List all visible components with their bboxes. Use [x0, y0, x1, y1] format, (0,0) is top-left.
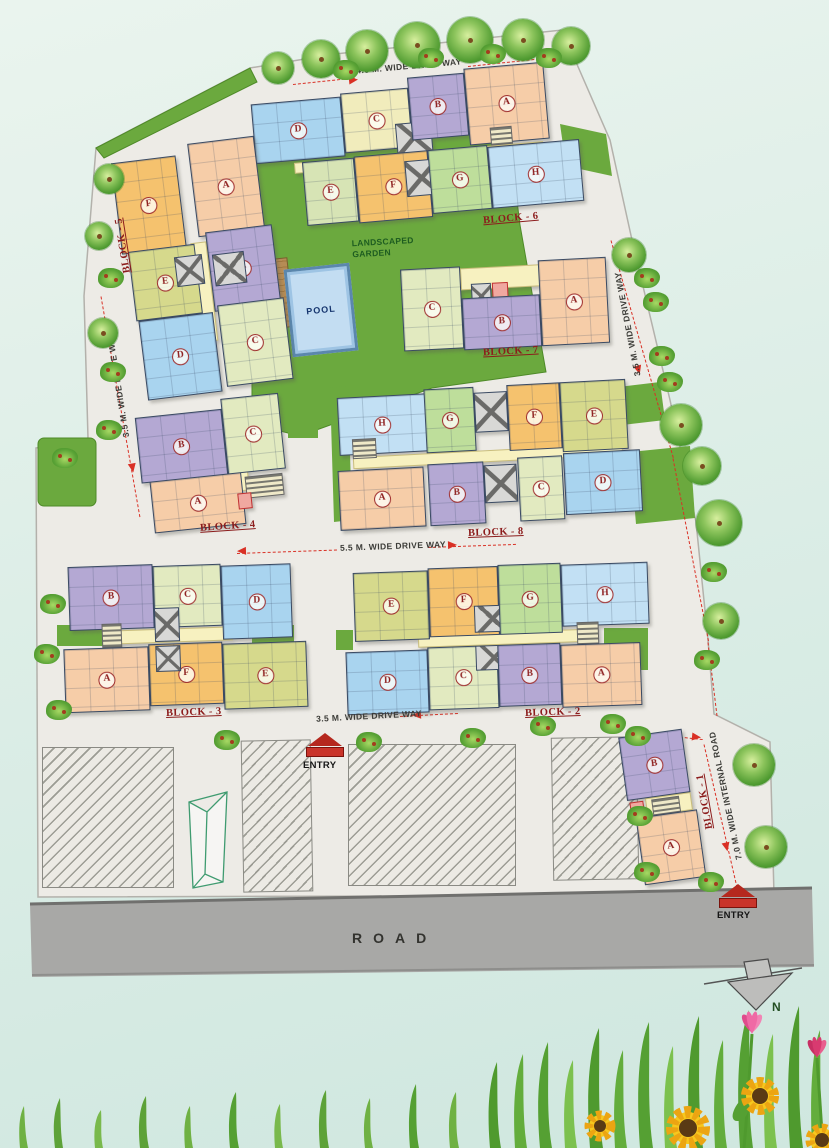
- block-6-unit-B: B: [407, 73, 469, 141]
- tree-icon: [683, 447, 721, 485]
- block-3-label: BLOCK - 3: [166, 706, 222, 719]
- bush-icon: [96, 420, 122, 440]
- entry-arrow-icon: [306, 733, 344, 757]
- block-7-unit-A: A: [538, 257, 610, 346]
- unit-letter-badge: A: [661, 838, 680, 857]
- stairs-icon: [576, 621, 599, 644]
- unit-letter-badge: C: [532, 479, 550, 497]
- block-4-unit-C: C: [220, 393, 286, 475]
- block-6-unit-G: G: [427, 145, 492, 214]
- unit-letter-badge: H: [527, 165, 545, 183]
- sunflower-icon: [672, 1112, 704, 1144]
- bush-icon: [649, 346, 675, 366]
- block-3: B C D A F E: [57, 557, 312, 720]
- block-2-label: BLOCK - 2: [525, 706, 581, 719]
- block-6-unit-H: H: [487, 139, 584, 209]
- block-8-label: BLOCK - 8: [468, 526, 524, 539]
- bush-icon: [40, 594, 66, 614]
- bush-icon: [214, 730, 240, 750]
- unit-letter-badge: E: [156, 273, 175, 292]
- tree-icon: [94, 164, 124, 194]
- block-4-unit-B: B: [135, 409, 228, 484]
- block-8-unit-A: A: [338, 467, 427, 531]
- unit-letter-badge: A: [373, 490, 391, 508]
- block-8-unit-F: F: [506, 382, 562, 451]
- tree-icon: [612, 238, 646, 272]
- bush-icon: [34, 644, 60, 664]
- block-2-unit-H: H: [560, 562, 649, 627]
- block-2-unit-A: A: [560, 642, 642, 708]
- bush-icon: [98, 268, 124, 288]
- unit-letter-badge: B: [493, 313, 511, 331]
- unit-letter-badge: D: [379, 674, 397, 692]
- arrowhead-icon: [448, 541, 457, 549]
- grass-flowers-decoration: [0, 998, 829, 1148]
- tree-icon: [703, 603, 739, 639]
- tree-icon: [660, 404, 702, 446]
- block-8: H G F E A B C D: [330, 378, 652, 536]
- bush-icon: [460, 728, 486, 748]
- unit-letter-badge: D: [594, 473, 612, 491]
- block-3-unit-B: B: [67, 564, 154, 631]
- bush-icon: [627, 806, 653, 826]
- unit-letter-badge: G: [451, 170, 469, 188]
- sunflower-icon: [589, 1115, 611, 1137]
- block-7-unit-C: C: [400, 266, 464, 351]
- unit-letter-badge: B: [448, 485, 466, 503]
- unit-letter-badge: E: [585, 407, 603, 425]
- unit-letter-badge: E: [383, 597, 401, 615]
- unit-letter-badge: G: [521, 590, 539, 608]
- unit-letter-badge: B: [429, 97, 447, 115]
- stairs-icon: [352, 438, 377, 459]
- block-7: C B A: [400, 253, 615, 359]
- block-5-unit-C: C: [217, 297, 293, 387]
- block-8-unit-E: E: [559, 379, 629, 452]
- block-8-unit-D: D: [563, 449, 643, 515]
- sunflower-icon: [746, 1082, 774, 1110]
- unit-letter-badge: C: [423, 300, 441, 318]
- stair-icon: [155, 645, 181, 672]
- block-3-unit-D: D: [220, 563, 293, 639]
- block-3-unit-A: A: [63, 646, 150, 713]
- bush-icon: [46, 700, 72, 720]
- unit-letter-badge: F: [526, 408, 544, 426]
- unit-letter-badge: D: [171, 347, 190, 366]
- arrowhead-icon: [128, 463, 137, 473]
- unit-letter-badge: H: [373, 416, 391, 434]
- block-2-unit-G: G: [497, 563, 562, 635]
- stair-icon: [174, 254, 205, 287]
- arrowhead-icon: [237, 547, 246, 555]
- bush-icon: [100, 362, 126, 382]
- bush-icon: [634, 862, 660, 882]
- block-8-unit-H: H: [337, 393, 428, 456]
- bush-icon: [657, 372, 683, 392]
- block-3-unit-E: E: [222, 641, 308, 710]
- unit-letter-badge: A: [497, 94, 515, 112]
- bush-icon: [643, 292, 669, 312]
- tree-icon: [88, 318, 118, 348]
- ramp-structure: [183, 786, 233, 890]
- entry-label: ENTRY: [717, 910, 750, 921]
- bush-icon: [418, 48, 444, 68]
- stair-icon: [212, 251, 248, 287]
- unit-letter-badge: G: [441, 411, 459, 429]
- stair-icon: [483, 464, 518, 504]
- bush-icon: [634, 268, 660, 288]
- unit-letter-badge: A: [189, 493, 208, 512]
- block-6-unit-E: E: [302, 158, 359, 226]
- unit-letter-badge: C: [246, 333, 265, 352]
- bush-icon: [536, 48, 562, 68]
- unit-letter-badge: F: [384, 178, 402, 196]
- unit-letter-badge: C: [455, 669, 473, 687]
- unit-letter-badge: A: [98, 671, 116, 689]
- unit-letter-badge: B: [172, 437, 191, 456]
- entry-arrow-icon: [719, 884, 757, 908]
- block-8-unit-C: C: [517, 455, 565, 521]
- tree-icon: [733, 744, 775, 786]
- unit-letter-badge: D: [248, 593, 266, 611]
- bush-icon: [701, 562, 727, 582]
- bush-icon: [333, 60, 359, 80]
- unit-letter-badge: D: [289, 121, 307, 139]
- block-2-unit-E: E: [353, 570, 430, 642]
- unit-letter-badge: F: [455, 593, 473, 611]
- block-5-unit-A: A: [187, 136, 265, 237]
- tree-icon: [262, 52, 294, 84]
- unit-letter-badge: A: [565, 293, 583, 311]
- block-2: E F G H D C B A: [340, 558, 652, 719]
- block-7-unit-B: B: [462, 294, 543, 350]
- parking-area: [348, 744, 516, 886]
- unit-letter-badge: B: [645, 755, 664, 774]
- unit-letter-badge: C: [179, 587, 197, 605]
- entry-label: ENTRY: [303, 760, 336, 771]
- tree-icon: [85, 222, 113, 250]
- block-2-unit-B: B: [497, 643, 562, 707]
- unit-letter-badge: C: [367, 111, 385, 129]
- block-6: D C B A E F G H: [247, 58, 589, 236]
- block-2-unit-D: D: [345, 649, 429, 715]
- bush-icon: [530, 716, 556, 736]
- stairs-icon: [490, 126, 513, 146]
- unit-letter-badge: B: [102, 589, 120, 607]
- unit-letter-badge: E: [257, 666, 275, 684]
- unit-letter-badge: A: [217, 177, 236, 196]
- stair-icon: [154, 607, 180, 642]
- stairs-icon: [101, 623, 122, 648]
- unit-letter-badge: F: [139, 196, 158, 215]
- road-label: ROAD: [352, 930, 437, 946]
- bush-icon: [480, 44, 506, 64]
- unit-letter-badge: B: [521, 666, 539, 684]
- pool-label: POOL: [306, 303, 336, 316]
- parking-area: [42, 747, 174, 888]
- unit-letter-badge: C: [244, 424, 263, 443]
- tree-icon: [745, 826, 787, 868]
- block-5-unit-D: D: [138, 312, 222, 401]
- unit-letter-badge: A: [593, 666, 611, 684]
- unit-letter-badge: H: [596, 585, 614, 603]
- bush-icon: [625, 726, 651, 746]
- block-8-unit-G: G: [423, 387, 476, 454]
- stair-icon: [474, 391, 509, 433]
- bush-icon: [600, 714, 626, 734]
- pool: POOL: [284, 263, 359, 357]
- bush-icon: [52, 448, 78, 468]
- block-4: B C A: [132, 391, 295, 538]
- bush-icon: [694, 650, 720, 670]
- block-5: F A E B D C: [105, 133, 301, 413]
- tree-icon: [696, 500, 742, 546]
- landscaped-garden-label: LANDSCAPED GARDEN: [351, 234, 438, 261]
- lift: [237, 492, 253, 509]
- site-plan: POOL LANDSCAPED GARDEN D C B A E F G H F…: [0, 0, 829, 1148]
- block-8-unit-B: B: [427, 461, 486, 526]
- bush-icon: [356, 732, 382, 752]
- unit-letter-badge: E: [321, 183, 339, 201]
